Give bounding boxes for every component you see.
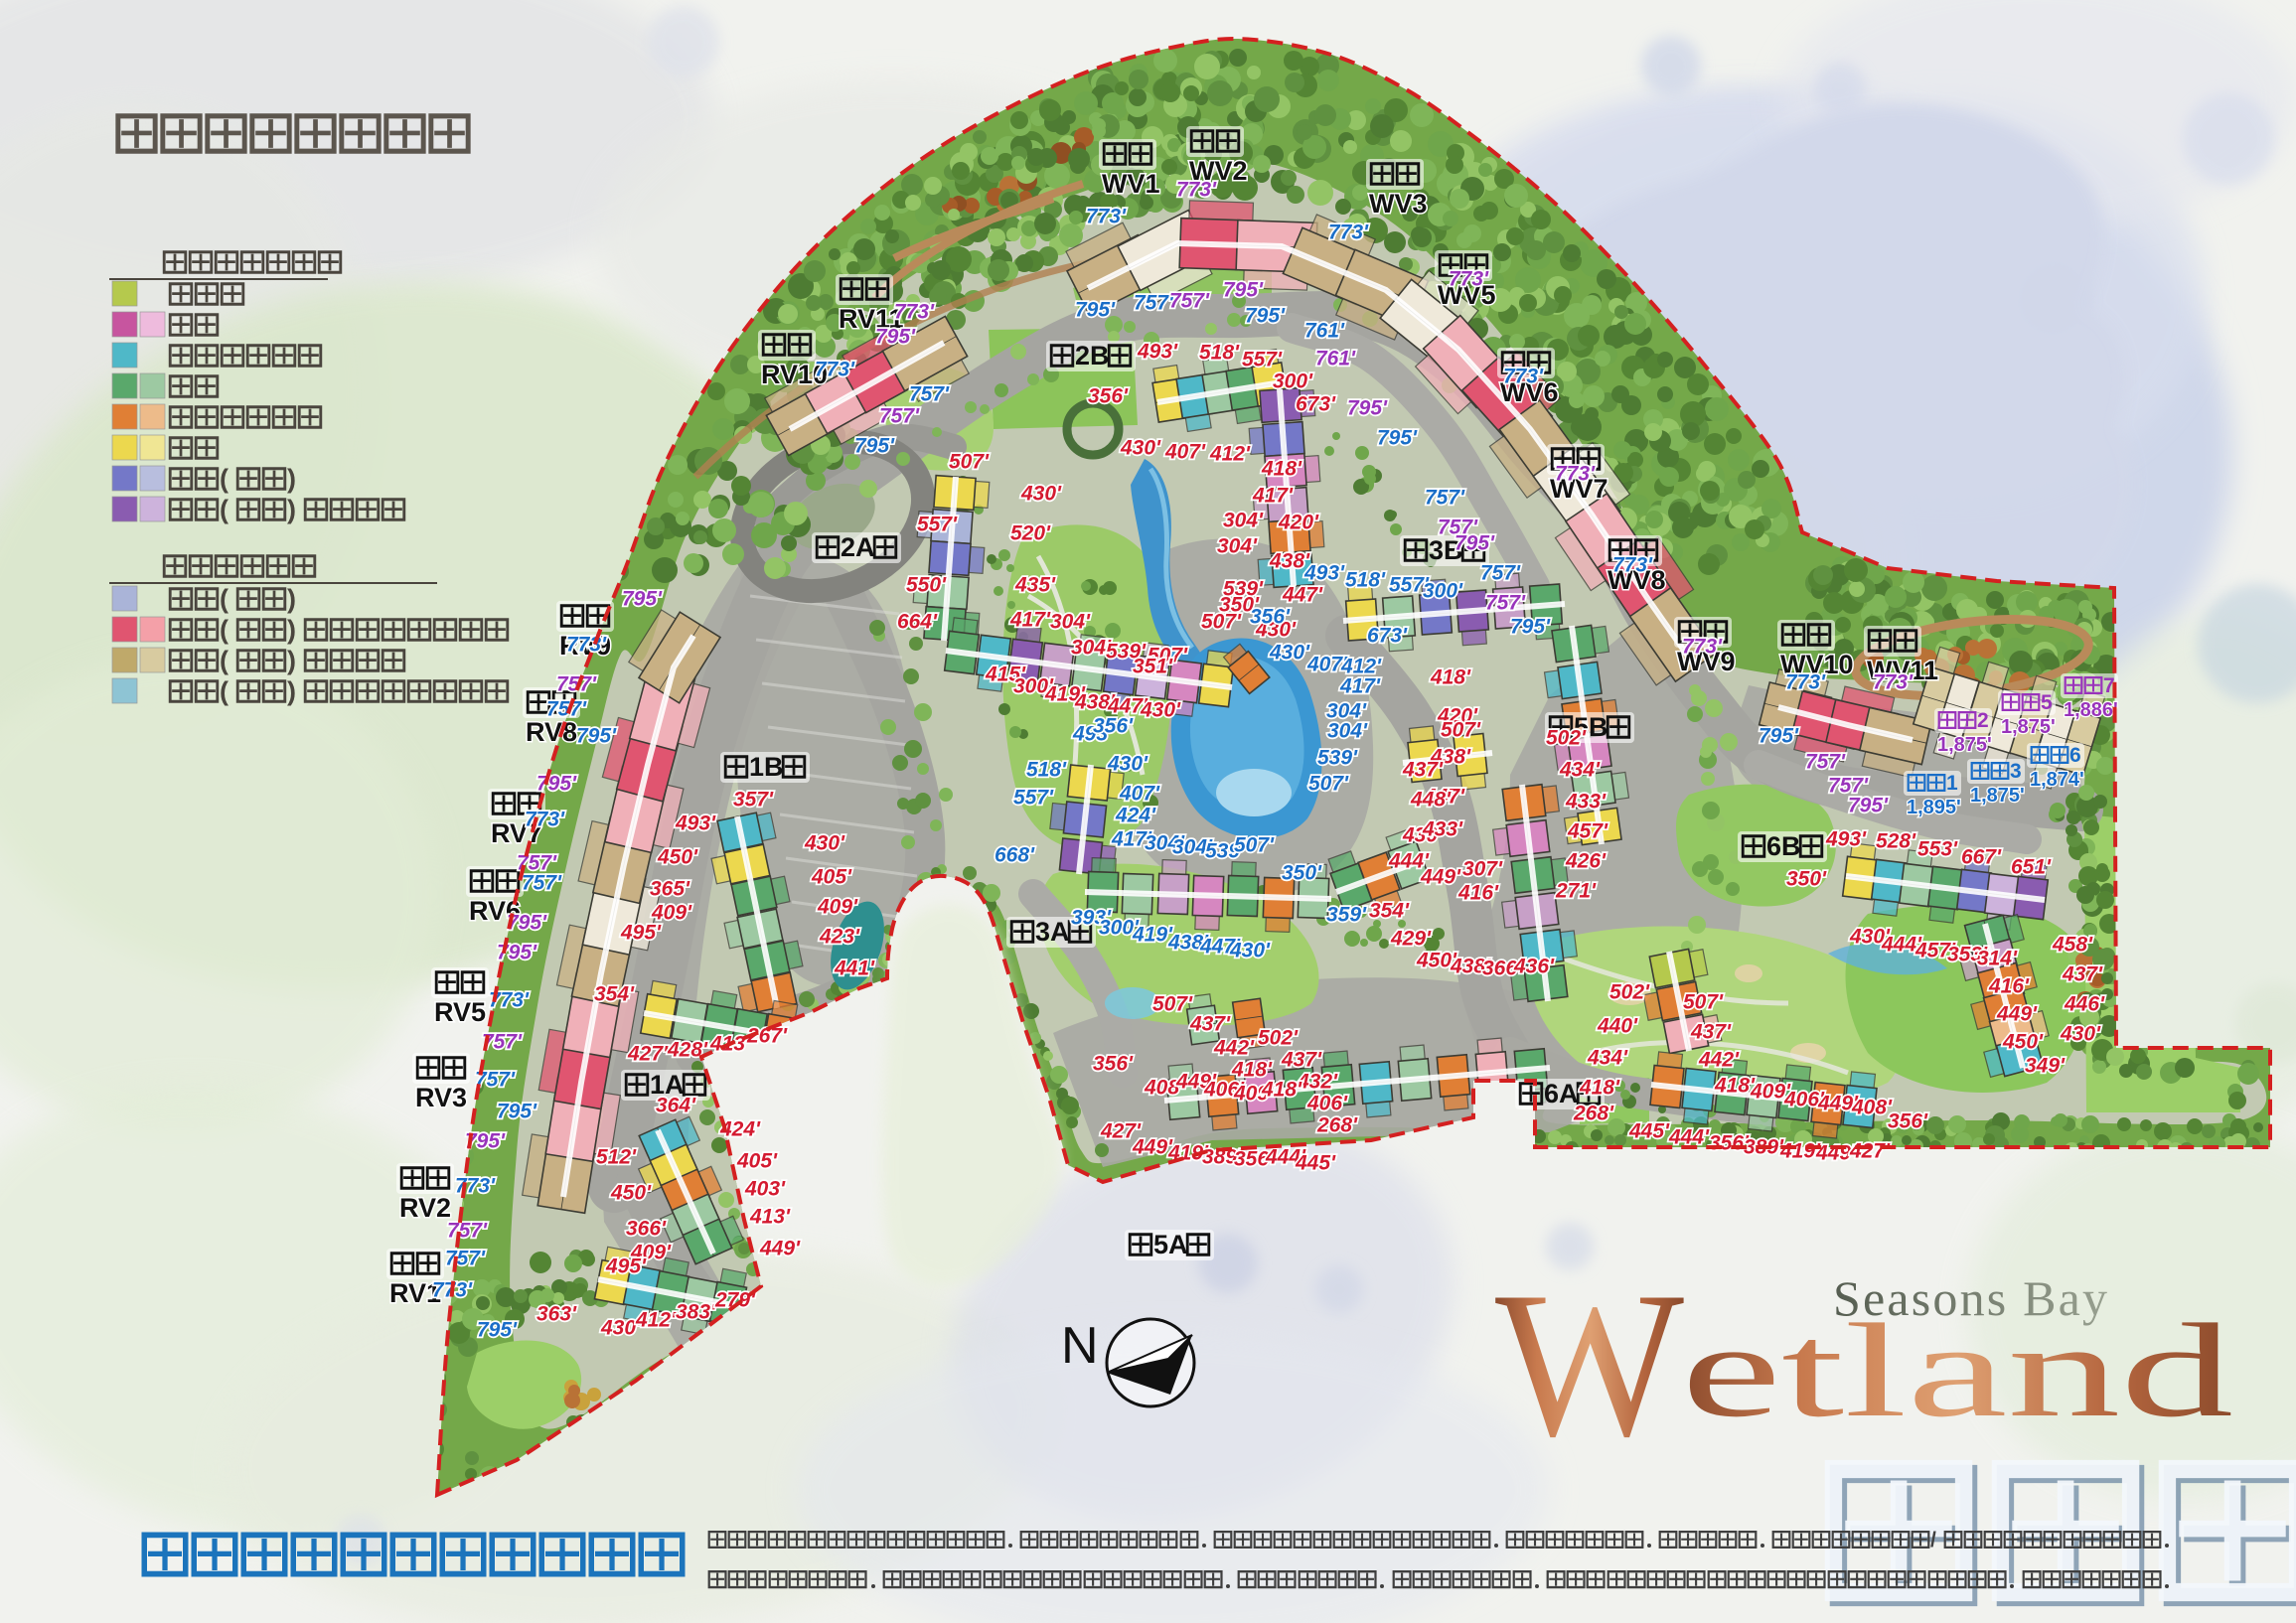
svg-text:667': 667' [1961, 846, 2002, 869]
svg-text:418': 418' [1579, 1077, 1620, 1100]
svg-text:795': 795' [1848, 795, 1889, 817]
svg-text:2B: 2B [1075, 341, 1110, 370]
svg-text:430': 430' [1269, 642, 1310, 664]
svg-text:518': 518' [1026, 759, 1067, 782]
svg-text:495': 495' [620, 922, 662, 945]
svg-text:445': 445' [1628, 1120, 1670, 1143]
svg-text:1,886': 1,886' [2064, 699, 2118, 721]
svg-text:512': 512' [596, 1146, 637, 1169]
svg-text:307': 307' [1462, 858, 1503, 881]
svg-text:314': 314' [1977, 948, 2018, 970]
svg-text:430': 430' [1229, 940, 1271, 962]
svg-text:423': 423' [819, 926, 860, 949]
svg-text:773': 773' [455, 1175, 496, 1198]
svg-text:354': 354' [1369, 900, 1410, 923]
svg-text:429': 429' [1390, 928, 1432, 951]
svg-text:553': 553' [1917, 838, 1958, 861]
svg-text:409': 409' [817, 896, 858, 919]
svg-text:412': 412' [635, 1309, 677, 1332]
svg-text:405': 405' [811, 866, 852, 889]
svg-text:): ) [287, 676, 296, 706]
svg-text:437': 437' [2062, 963, 2103, 986]
svg-text:437': 437' [1189, 1013, 1231, 1036]
svg-text:): ) [287, 615, 296, 645]
svg-text:520': 520' [1010, 522, 1051, 545]
svg-text:etland: etland [1681, 1297, 2233, 1445]
svg-text:495': 495' [605, 1255, 647, 1278]
svg-text:446': 446' [2064, 993, 2105, 1016]
svg-text:795': 795' [875, 326, 916, 349]
svg-text:): ) [287, 584, 296, 614]
svg-text:773': 773' [525, 809, 565, 831]
svg-text:518': 518' [1199, 342, 1240, 365]
svg-text:350': 350' [1219, 594, 1260, 617]
svg-text:795': 795' [622, 588, 663, 611]
svg-text:RV8: RV8 [526, 717, 577, 747]
svg-text:(: ( [220, 495, 229, 524]
svg-text:557': 557' [1013, 787, 1054, 810]
svg-text:359': 359' [1326, 904, 1367, 927]
svg-text:268': 268' [1316, 1114, 1358, 1137]
svg-text:773': 773' [1555, 463, 1596, 486]
svg-text:364': 364' [656, 1095, 696, 1117]
svg-text:773': 773' [1086, 206, 1127, 228]
svg-text:651': 651' [2011, 856, 2052, 879]
svg-text:304': 304' [1327, 720, 1368, 743]
svg-text:449': 449' [1132, 1136, 1173, 1159]
svg-text:493': 493' [1825, 828, 1867, 851]
svg-text:757': 757' [1485, 592, 1526, 615]
svg-text:407': 407' [1164, 441, 1206, 464]
svg-text:354': 354' [594, 983, 635, 1006]
svg-text:426': 426' [1565, 850, 1607, 873]
svg-text:557': 557' [917, 514, 958, 536]
svg-text:773': 773' [894, 301, 935, 324]
svg-text:457': 457' [1567, 820, 1608, 843]
svg-text:350': 350' [1786, 868, 1827, 891]
svg-text:757': 757' [522, 872, 562, 895]
svg-text:430': 430' [1107, 753, 1148, 776]
svg-text:417': 417' [1252, 485, 1294, 508]
svg-text:757': 757' [1134, 292, 1174, 315]
svg-text:N: N [1061, 1317, 1099, 1375]
svg-text:(: ( [220, 676, 229, 706]
svg-text:773': 773' [1873, 671, 1913, 694]
svg-text:407': 407' [1119, 783, 1160, 806]
svg-text:420': 420' [1278, 512, 1319, 534]
svg-text:449': 449' [759, 1238, 801, 1260]
svg-text:773': 773' [1503, 366, 1544, 388]
svg-text:795': 795' [477, 1319, 518, 1342]
svg-text:773': 773' [1449, 268, 1489, 291]
svg-text:433': 433' [1565, 791, 1607, 813]
svg-text:442': 442' [1213, 1037, 1255, 1060]
svg-text:424': 424' [1115, 805, 1156, 827]
svg-text:757': 757' [879, 405, 920, 428]
svg-text:430': 430' [1020, 483, 1062, 506]
svg-text:795': 795' [1759, 725, 1799, 748]
svg-text:(: ( [220, 615, 229, 645]
svg-text:507': 507' [1308, 773, 1349, 796]
svg-text:437': 437' [1402, 759, 1444, 782]
svg-text:502': 502' [1546, 727, 1587, 750]
svg-text:383': 383' [676, 1301, 716, 1324]
svg-text:300': 300' [1273, 370, 1313, 393]
svg-text:458': 458' [2052, 934, 2093, 957]
svg-text:795': 795' [1223, 279, 1264, 302]
svg-text:418': 418' [1714, 1075, 1756, 1098]
svg-text:757': 757' [447, 1220, 488, 1243]
svg-text:408': 408' [1851, 1097, 1893, 1119]
svg-text:433': 433' [1422, 818, 1463, 841]
svg-text:757': 757' [909, 383, 950, 406]
svg-text:445': 445' [1295, 1152, 1336, 1175]
svg-text:673': 673' [1367, 625, 1408, 648]
svg-text:356': 356' [1093, 715, 1134, 738]
svg-text:450': 450' [2002, 1031, 2044, 1054]
svg-text:440': 440' [1597, 1015, 1638, 1038]
svg-text:795': 795' [1347, 397, 1388, 420]
svg-text:RV2: RV2 [399, 1193, 451, 1223]
svg-text:3: 3 [2010, 760, 2022, 783]
svg-text:6B: 6B [1766, 831, 1801, 861]
svg-text:493': 493' [675, 812, 716, 835]
svg-text:539': 539' [1317, 747, 1358, 770]
svg-text:757': 757' [445, 1248, 486, 1270]
svg-text:757': 757' [1425, 487, 1465, 510]
svg-text:502': 502' [1258, 1027, 1299, 1050]
svg-text:356': 356' [1093, 1053, 1134, 1076]
svg-text:351': 351' [1133, 656, 1173, 678]
svg-text:300': 300' [1423, 580, 1463, 603]
svg-text:427': 427' [627, 1043, 669, 1066]
svg-text:550': 550' [906, 574, 947, 597]
svg-text:6: 6 [2069, 744, 2081, 767]
svg-text:557': 557' [1242, 349, 1283, 371]
svg-text:437': 437' [1690, 1021, 1732, 1044]
svg-text:365': 365' [650, 878, 690, 901]
svg-text:493': 493' [1137, 341, 1178, 364]
svg-text:356': 356' [1888, 1110, 1928, 1133]
svg-text:W: W [1495, 1250, 1684, 1480]
svg-text:1,874': 1,874' [2030, 769, 2084, 791]
svg-text:413': 413' [749, 1206, 791, 1229]
svg-text:795': 795' [854, 435, 895, 458]
svg-text:507': 507' [949, 451, 990, 474]
svg-text:304': 304' [1217, 535, 1258, 558]
svg-text:757': 757' [546, 698, 587, 721]
svg-text:434': 434' [1559, 759, 1601, 782]
svg-text:436': 436' [1513, 956, 1555, 978]
svg-text:795': 795' [536, 773, 577, 796]
svg-text:(: ( [220, 464, 229, 494]
svg-text:357': 357' [733, 789, 774, 811]
svg-text:): ) [287, 495, 296, 524]
svg-text:448': 448' [1410, 789, 1452, 811]
svg-text:406': 406' [1306, 1093, 1348, 1115]
svg-text:356': 356' [1088, 385, 1129, 408]
svg-text:366': 366' [626, 1218, 667, 1241]
svg-text:773': 773' [1328, 221, 1369, 244]
svg-text:507': 507' [1234, 834, 1275, 857]
svg-text:773': 773' [1176, 179, 1217, 202]
svg-text:493': 493' [1303, 562, 1345, 585]
svg-text:416': 416' [1457, 882, 1499, 905]
svg-text:/: / [1930, 1529, 1936, 1551]
svg-text:795': 795' [1510, 616, 1551, 639]
svg-text:673': 673' [1296, 393, 1336, 416]
svg-text:5: 5 [2041, 691, 2053, 714]
svg-text:349': 349' [2025, 1055, 2066, 1078]
svg-text:(: ( [220, 584, 229, 614]
svg-text:450': 450' [657, 846, 698, 869]
svg-text:795': 795' [1454, 532, 1495, 555]
svg-text:363': 363' [536, 1303, 577, 1326]
svg-text:773': 773' [1612, 554, 1653, 577]
svg-text:441': 441' [834, 958, 875, 980]
svg-text:761': 761' [1315, 348, 1356, 370]
svg-text:419': 419' [1132, 924, 1173, 947]
svg-text:1,895': 1,895' [1907, 797, 1961, 818]
svg-text:RV3: RV3 [415, 1083, 467, 1112]
svg-text:WV1: WV1 [1102, 169, 1160, 199]
svg-text:449': 449' [1420, 866, 1461, 889]
svg-text:403': 403' [744, 1178, 786, 1201]
svg-text:): ) [287, 646, 296, 675]
svg-text:WV3: WV3 [1369, 189, 1428, 219]
svg-text:761': 761' [1304, 320, 1345, 343]
svg-text:1B: 1B [749, 752, 784, 782]
svg-text:435': 435' [1014, 574, 1056, 597]
svg-text:773': 773' [1785, 671, 1826, 694]
svg-text:271': 271' [1555, 880, 1597, 903]
svg-text:507': 507' [1441, 719, 1481, 742]
svg-text:): ) [287, 464, 296, 494]
svg-text:1,875': 1,875' [2001, 716, 2056, 738]
svg-text:430': 430' [1140, 699, 1181, 722]
svg-text:1: 1 [1946, 772, 1958, 795]
svg-text:1,875': 1,875' [1970, 785, 2025, 807]
svg-text:773': 773' [566, 634, 607, 657]
svg-text:668': 668' [995, 844, 1035, 867]
svg-text:795': 795' [1245, 305, 1286, 328]
svg-text:268': 268' [1573, 1103, 1614, 1125]
svg-text:418': 418' [1261, 458, 1302, 481]
svg-text:773': 773' [815, 359, 855, 381]
svg-text:757': 757' [1480, 562, 1521, 585]
svg-text:449': 449' [1996, 1003, 2038, 1026]
svg-text:304': 304' [1050, 611, 1091, 634]
svg-text:3A: 3A [1035, 917, 1070, 947]
svg-text:419': 419' [1779, 1140, 1821, 1163]
svg-text:418': 418' [1430, 666, 1471, 689]
svg-text:1,875': 1,875' [1937, 734, 1992, 756]
svg-text:757': 757' [1805, 751, 1846, 774]
svg-text:405': 405' [736, 1150, 778, 1173]
svg-text:427': 427' [1849, 1140, 1891, 1163]
svg-text:795': 795' [1075, 299, 1116, 322]
svg-text:RV5: RV5 [434, 997, 486, 1027]
svg-text:434': 434' [1587, 1047, 1628, 1070]
svg-text:418': 418' [1261, 1079, 1302, 1102]
svg-text:795': 795' [576, 725, 617, 748]
svg-text:304': 304' [1223, 510, 1264, 532]
svg-text:417': 417' [1009, 609, 1051, 632]
svg-text:2: 2 [1977, 709, 1989, 732]
svg-text:432': 432' [1297, 1071, 1338, 1094]
svg-text:5A: 5A [1153, 1230, 1188, 1259]
svg-text:430': 430' [1120, 437, 1161, 460]
svg-text:507': 507' [1152, 993, 1193, 1016]
svg-text:795': 795' [1377, 427, 1418, 450]
svg-text:757': 757' [1169, 290, 1210, 313]
svg-text:(: ( [220, 646, 229, 675]
svg-text:773': 773' [1682, 636, 1723, 659]
svg-text:757': 757' [556, 673, 597, 696]
svg-text:664': 664' [897, 611, 938, 634]
svg-text:437': 437' [1281, 1049, 1322, 1072]
svg-text:447': 447' [1282, 584, 1323, 607]
svg-text:417': 417' [1339, 675, 1381, 698]
svg-text:350': 350' [1282, 862, 1322, 885]
svg-text:502': 502' [1609, 981, 1650, 1004]
svg-text:412': 412' [1209, 443, 1251, 466]
svg-text:450': 450' [610, 1182, 652, 1205]
svg-text:430': 430' [2060, 1023, 2101, 1046]
svg-text:518': 518' [1345, 569, 1386, 592]
svg-text:2A: 2A [841, 532, 875, 562]
svg-text:430': 430' [804, 832, 845, 855]
svg-text:528': 528' [1876, 830, 1916, 853]
svg-text:416': 416' [1988, 975, 2030, 998]
svg-text:795': 795' [497, 1101, 537, 1123]
svg-text:507': 507' [1683, 991, 1724, 1014]
svg-text:442': 442' [1698, 1049, 1740, 1072]
